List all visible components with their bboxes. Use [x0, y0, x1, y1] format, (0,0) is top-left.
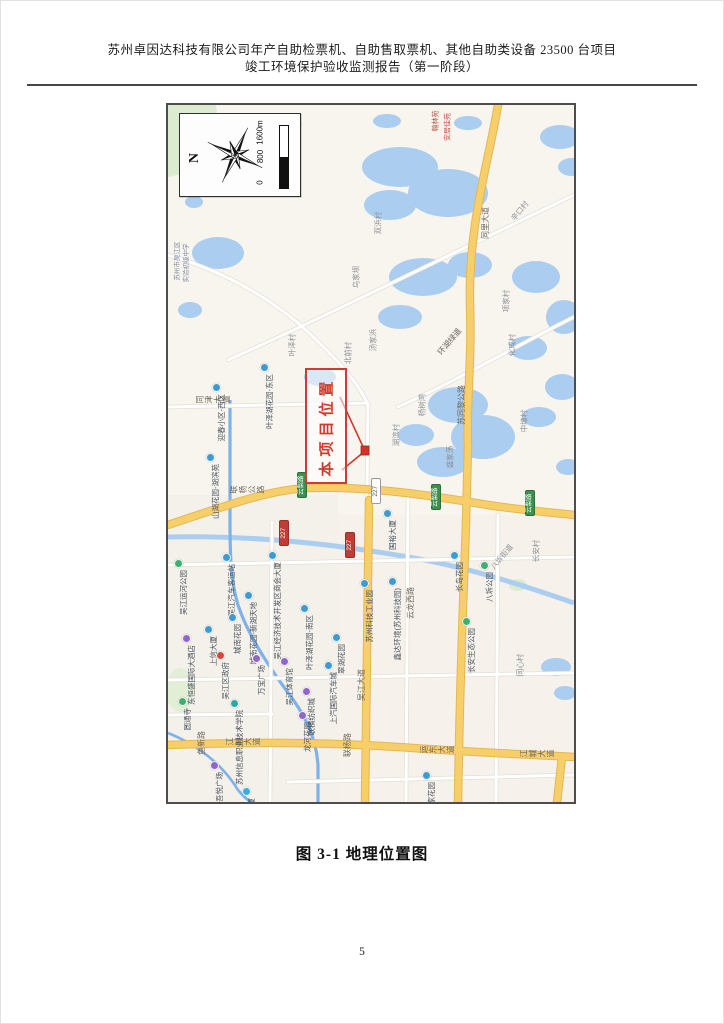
poi-marker-icon [298, 711, 307, 720]
figure-caption: 图 3-1 地理位置图 [0, 842, 724, 864]
poi-marker-icon [383, 509, 392, 518]
poi-label: 圆通寺 [184, 708, 192, 731]
road-badge: 云梨路 [431, 484, 441, 510]
poi-marker-icon [182, 634, 191, 643]
poi-label: 吴江经济技术开发区商会大厦 [274, 562, 282, 660]
poi-marker-icon [230, 699, 239, 708]
poi-marker-icon [268, 551, 277, 560]
map-legend: N 0 800 1600m [179, 113, 301, 197]
poi-label: 吴江运河公园 [180, 570, 188, 615]
poi-marker-icon [204, 625, 213, 634]
poi-marker-icon [216, 651, 225, 660]
page-number: 5 [0, 946, 724, 958]
poi-label: 国裕大厦 [389, 520, 397, 550]
project-location-label: 本项目位置 [316, 376, 337, 476]
poi-marker-icon [252, 654, 261, 663]
poi-label: 联横纺织城 [308, 698, 316, 736]
poi-label: 苏州科技工业园 [366, 590, 374, 643]
poi-marker-icon [332, 633, 341, 642]
project-marker [361, 446, 369, 455]
poi-marker-icon [228, 613, 237, 622]
report-page: 苏州卓因达科技有限公司年产自助检票机、自助售取票机、其他自助类设备 23500 … [0, 0, 724, 1024]
poi-label: 鑫达环境(苏州科技园) [394, 588, 402, 661]
poi-label: 吴江区政府 [222, 662, 230, 700]
poi-label: 八坼公园 [486, 572, 494, 602]
poi-marker-icon [242, 787, 251, 796]
map-road-label: 江城大道 [226, 737, 262, 745]
poi-label: 吴江体育馆 [286, 668, 294, 706]
poi-label: 长安生态公园 [468, 628, 476, 673]
poi-marker-icon [260, 363, 269, 372]
poi-marker-icon [212, 383, 221, 392]
map-road-label: 运东大道 [420, 745, 456, 753]
scale-tick-800: 800 [256, 150, 265, 163]
road-badge: 227 [279, 520, 289, 546]
scale-bar [279, 125, 289, 189]
map-road-label: 同津大道 [196, 395, 232, 403]
road-badge: 云梨路 [525, 490, 535, 516]
poi-marker-icon [178, 697, 187, 706]
poi-marker-icon [462, 617, 471, 626]
poi-label: 苏州信息职业技术学院 [236, 710, 244, 785]
poi-label: 叶泽湖花园-东区 [266, 374, 274, 429]
header-line-2: 竣工环境保护验收监测报告（第一阶段） [0, 59, 724, 76]
poi-marker-icon [422, 771, 431, 780]
poi-marker-icon [280, 657, 289, 666]
location-map: 乌家坝双浜村汤家浜北前村叶泽村辛口村项家村化成村中塘村湖滨村杨树湾盛家荡八坼街道… [166, 103, 576, 804]
poi-label: 上汽国际汽车城 [330, 672, 338, 725]
poi-marker-icon [244, 591, 253, 600]
poi-label: 叶泽湖花园-南区 [306, 615, 314, 670]
poi-label: 万宝广场 [258, 665, 266, 695]
poi-marker-icon [206, 453, 215, 462]
poi-label: 盛家花园 [428, 782, 436, 804]
poi-label: 城南花园 [234, 624, 242, 654]
poi-label: 东恒盛国际大酒店 [188, 645, 196, 705]
road-badge: 227 [345, 532, 355, 558]
poi-marker-icon [222, 553, 231, 562]
poi-label: 长岛花园 [456, 562, 464, 592]
poi-marker-icon [360, 579, 369, 588]
poi-marker-icon [450, 551, 459, 560]
poi-label: 迎春小区-西区 [218, 394, 226, 442]
poi-label: 吾悦广场 [216, 772, 224, 802]
poi-marker-icon [300, 604, 309, 613]
north-label: N [187, 153, 203, 163]
poi-marker-icon [324, 661, 333, 670]
poi-marker-icon [174, 559, 183, 568]
map-road-label: 江城大道 [520, 749, 556, 757]
header-rule [27, 84, 697, 86]
poi-marker-icon [210, 761, 219, 770]
road-badge: 227 [371, 478, 381, 504]
scale-tick-0: 0 [256, 180, 265, 184]
poi-label: 苏州湾大厦 [248, 798, 256, 804]
poi-label: 山湖花园-湖滨苑 [212, 464, 220, 519]
map-road-label: 联杨公路 [230, 485, 266, 493]
poi-marker-icon [302, 687, 311, 696]
poi-label: 翠湖花园 [338, 644, 346, 674]
header-line-1: 苏州卓因达科技有限公司年产自助检票机、自助售取票机、其他自助类设备 23500 … [0, 42, 724, 59]
poi-marker-icon [480, 561, 489, 570]
poi-label: 吴江汽车客运站 [228, 564, 236, 617]
poi-marker-icon [388, 577, 397, 586]
poi-label: 上信大厦 [210, 636, 218, 666]
project-location-callout: 本项目位置 [305, 368, 347, 484]
scale-tick-1600m: 1600m [256, 120, 265, 144]
page-header: 苏州卓因达科技有限公司年产自助检票机、自助售取票机、其他自助类设备 23500 … [0, 42, 724, 76]
